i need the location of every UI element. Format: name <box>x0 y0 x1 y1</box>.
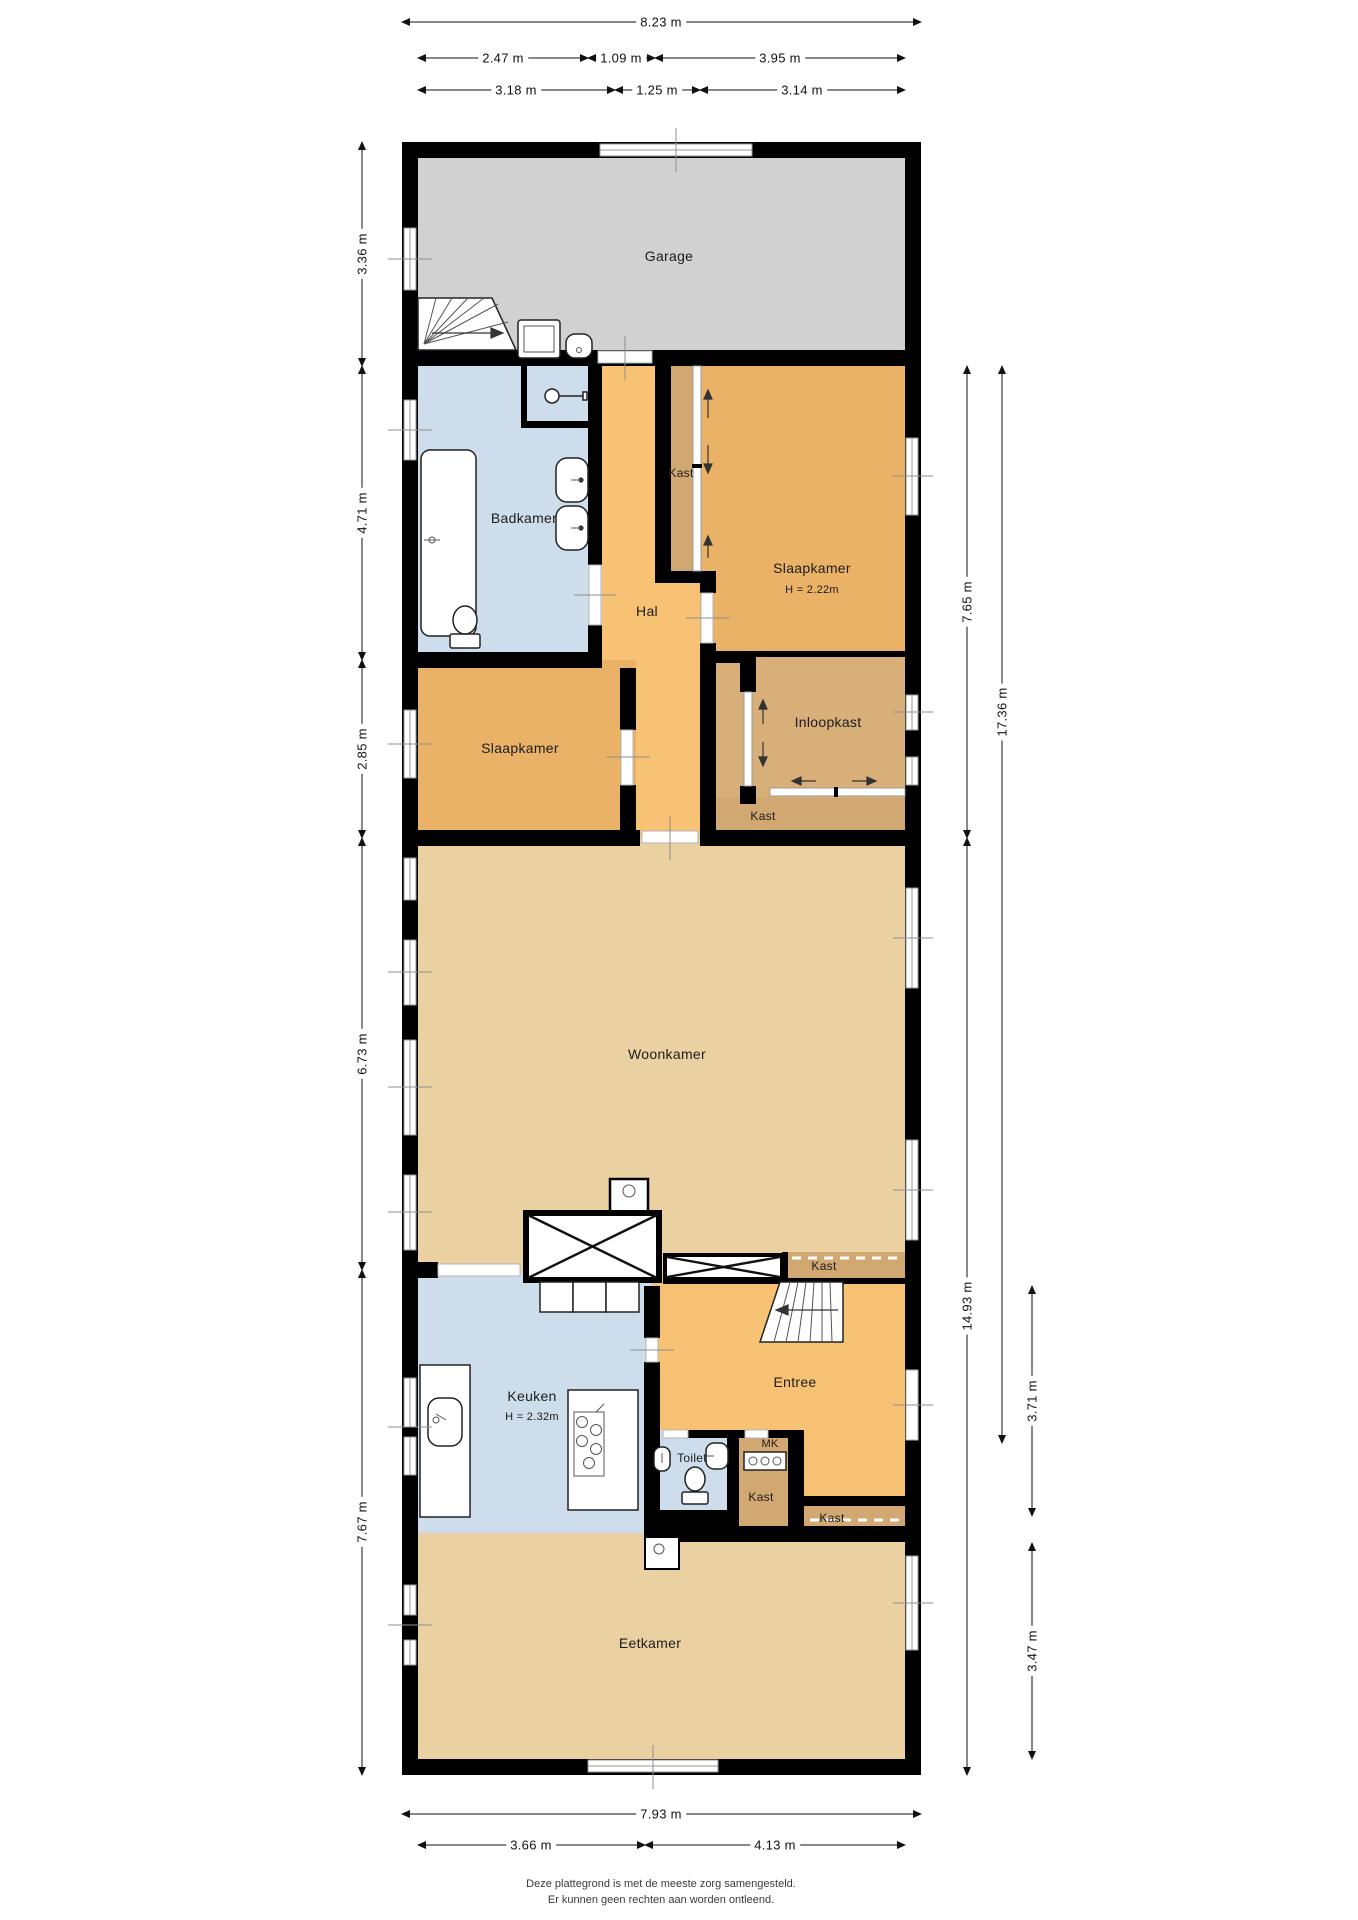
garage-appliance <box>566 334 592 358</box>
woonkamer-keuken-opening <box>438 1264 520 1276</box>
floor-plan: Garage Badkamer Kast Hal Slaapkamer H = … <box>0 0 1358 1920</box>
floorplan-drawing <box>0 0 1358 1920</box>
window <box>404 1640 416 1665</box>
dim-bottom-row2-0: 3.66 m <box>506 1838 556 1853</box>
dim-top-row3-1: 1.25 m <box>632 83 682 98</box>
kitchen-cabinets <box>540 1282 639 1312</box>
bathroom-sink <box>556 506 588 550</box>
toilet-door <box>663 1430 688 1438</box>
mk-label: MK <box>761 1438 778 1450</box>
kast-woonkamer-room <box>788 1252 905 1278</box>
dim-top-row2-2: 3.95 m <box>755 51 805 66</box>
void-box-horizontal <box>665 1255 782 1279</box>
dim-top-row3-0: 3.18 m <box>491 83 541 98</box>
dim-left-3: 6.73 m <box>355 1029 370 1079</box>
dim-bottom-total: 7.93 m <box>636 1807 686 1822</box>
bathroom-toilet <box>450 606 480 648</box>
bathroom-sink <box>556 458 588 502</box>
void-box <box>526 1213 659 1280</box>
slaapkamer-rechts-label: Slaapkamer <box>773 560 851 576</box>
woonkamer-label: Woonkamer <box>628 1046 706 1062</box>
kast-gang-label: Kast <box>819 1511 844 1525</box>
eetkamer-label: Eetkamer <box>619 1635 681 1651</box>
kast-hal-label: Kast <box>668 466 693 480</box>
kast-entree-room <box>739 1478 793 1533</box>
dim-left-0: 3.36 m <box>355 229 370 279</box>
dim-left-2: 2.85 m <box>355 724 370 774</box>
toilet-fountain <box>654 1447 670 1471</box>
inloopkast-label: Inloopkast <box>795 714 862 730</box>
dim-right-section-0: 3.71 m <box>1025 1376 1040 1426</box>
dim-top-row2-0: 2.47 m <box>478 51 528 66</box>
dim-left-4: 7.67 m <box>355 1497 370 1547</box>
toilet-fixture <box>682 1467 708 1504</box>
dim-left-1: 4.71 m <box>355 488 370 538</box>
slaapkamer-rechts-room <box>700 358 913 655</box>
window <box>404 1437 416 1475</box>
kast-inloopkast-label: Kast <box>750 809 775 823</box>
mk-panel <box>744 1452 786 1470</box>
slaapkamer-rechts-height: H = 2.22m <box>785 584 839 596</box>
dim-top-row2-1: 1.09 m <box>596 51 646 66</box>
badkamer-label: Badkamer <box>491 510 557 526</box>
toilet-sink <box>706 1443 728 1469</box>
woonkamer-stove <box>610 1179 648 1215</box>
window <box>404 858 416 900</box>
dim-top-total: 8.23 m <box>636 15 686 30</box>
window <box>906 757 918 785</box>
toilet-label: Toilet <box>677 1451 707 1465</box>
garage-washer <box>518 320 560 358</box>
dim-bottom-row2-1: 4.13 m <box>750 1838 800 1853</box>
window <box>404 1585 416 1615</box>
kast-entree-label: Kast <box>748 1490 773 1504</box>
dim-right-section-1: 3.47 m <box>1025 1626 1040 1676</box>
mk-door <box>745 1430 768 1438</box>
dim-right-inner-0: 7.65 m <box>960 577 975 627</box>
slaapkamer-links-label: Slaapkamer <box>481 740 559 756</box>
eetkamer-stove <box>645 1537 679 1569</box>
dim-top-row3-2: 3.14 m <box>777 83 827 98</box>
dim-right-inner-1: 14.93 m <box>960 1277 975 1334</box>
dim-right-outer: 17.36 m <box>995 683 1010 740</box>
keuken-label: Keuken <box>507 1388 556 1404</box>
kitchen-counter <box>420 1365 470 1517</box>
disclaimer-line-2: Er kunnen geen rechten aan worden ontlee… <box>548 1894 774 1906</box>
kitchen-island <box>568 1390 638 1510</box>
hal-label: Hal <box>636 603 658 619</box>
garage-label: Garage <box>645 248 694 264</box>
window <box>404 1378 416 1427</box>
disclaimer-line-1: Deze plattegrond is met de meeste zorg s… <box>526 1878 796 1890</box>
kast-woonkamer-label: Kast <box>811 1259 836 1273</box>
entree-label: Entree <box>773 1374 816 1390</box>
keuken-height: H = 2.32m <box>505 1411 559 1423</box>
